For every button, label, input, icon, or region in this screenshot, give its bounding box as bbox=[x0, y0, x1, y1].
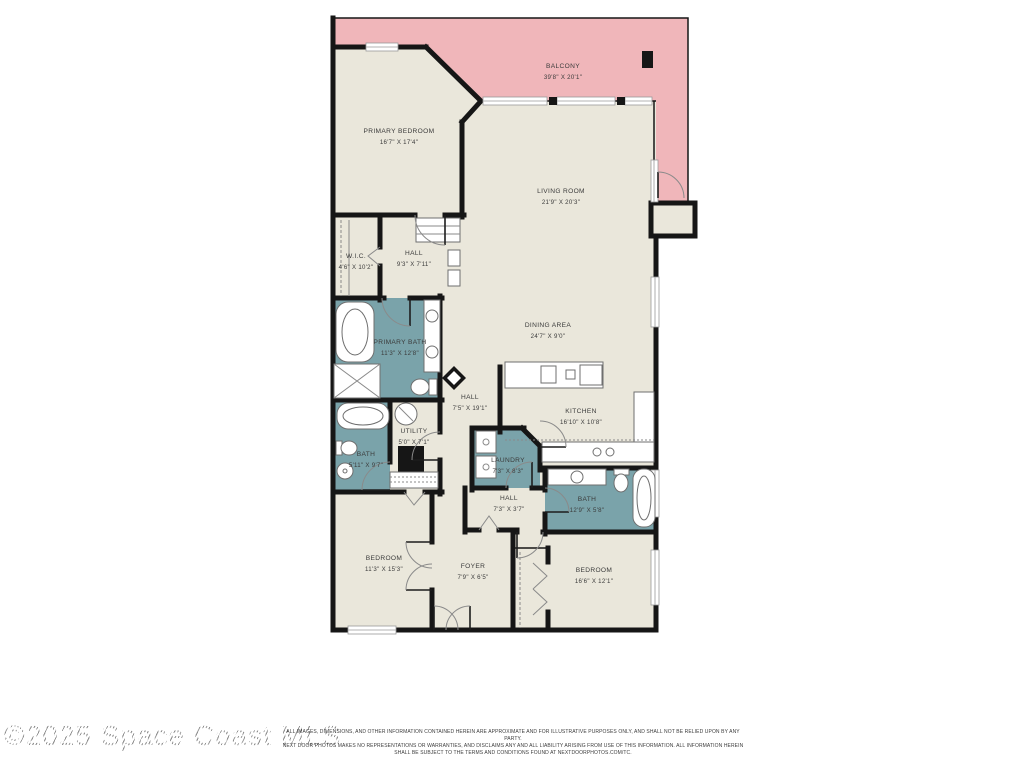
svg-text:BATH: BATH bbox=[578, 496, 597, 503]
sink-icon bbox=[426, 310, 438, 322]
svg-text:16'7" X 17'4": 16'7" X 17'4" bbox=[380, 139, 418, 146]
floor-plan-page: BALCONY39'8" X 20'1" PRIMARY BEDROOM16'7… bbox=[0, 0, 1024, 768]
toilet-icon bbox=[429, 379, 437, 395]
svg-text:7'3" X 3'7": 7'3" X 3'7" bbox=[494, 506, 525, 513]
svg-text:7'3" X 8'3": 7'3" X 8'3" bbox=[493, 468, 524, 475]
svg-text:BEDROOM: BEDROOM bbox=[366, 555, 403, 562]
closet-door-icon bbox=[448, 270, 460, 286]
entry-vestibule-area bbox=[652, 203, 694, 236]
svg-text:BATH: BATH bbox=[357, 451, 376, 458]
stove-icon bbox=[593, 448, 601, 456]
disclaimer-line: SHALL BE SUBJECT TO THE TERMS AND CONDIT… bbox=[282, 750, 744, 757]
svg-text:HALL: HALL bbox=[500, 495, 518, 502]
washer-icon bbox=[476, 431, 496, 453]
svg-text:LAUNDRY: LAUNDRY bbox=[491, 457, 525, 464]
disclaimer-line: NEXT DOOR PHOTOS MAKES NO REPRESENTATION… bbox=[282, 743, 744, 750]
svg-text:12'9" X 5'8": 12'9" X 5'8" bbox=[570, 507, 605, 514]
svg-text:11'3" X 12'8": 11'3" X 12'8" bbox=[381, 350, 419, 357]
kitchen-sink-icon bbox=[541, 366, 556, 383]
floor-plan: BALCONY39'8" X 20'1" PRIMARY BEDROOM16'7… bbox=[0, 0, 1024, 768]
svg-text:4'6" X 10'2": 4'6" X 10'2" bbox=[339, 264, 374, 271]
stove-icon bbox=[606, 448, 614, 456]
svg-text:FOYER: FOYER bbox=[461, 563, 485, 570]
svg-text:24'7" X 9'0": 24'7" X 9'0" bbox=[531, 333, 566, 340]
svg-text:DINING AREA: DINING AREA bbox=[525, 322, 572, 329]
closet-door-icon bbox=[448, 250, 460, 266]
svg-text:BEDROOM: BEDROOM bbox=[576, 567, 613, 574]
balcony-pillar bbox=[642, 51, 653, 68]
closet-shelf-icon bbox=[416, 218, 460, 242]
svg-text:16'6" X 12'1": 16'6" X 12'1" bbox=[575, 578, 613, 585]
svg-text:HALL: HALL bbox=[461, 394, 479, 401]
svg-text:9'3" X 7'11": 9'3" X 7'11" bbox=[397, 261, 431, 268]
sink-icon bbox=[571, 471, 583, 483]
svg-text:HALL: HALL bbox=[405, 250, 423, 257]
svg-text:KITCHEN: KITCHEN bbox=[565, 408, 596, 415]
svg-text:39'8" X 20'1": 39'8" X 20'1" bbox=[544, 74, 582, 81]
svg-text:W.I.C.: W.I.C. bbox=[346, 253, 366, 260]
svg-text:5'0" X 7'1": 5'0" X 7'1" bbox=[399, 439, 430, 446]
svg-text:11'3" X 15'3": 11'3" X 15'3" bbox=[365, 566, 403, 573]
svg-text:7'5" X 19'1": 7'5" X 19'1" bbox=[453, 405, 488, 412]
svg-text:BALCONY: BALCONY bbox=[546, 63, 580, 70]
disclaimer-text: ALL IMAGES, DIMENSIONS, AND OTHER INFORM… bbox=[282, 729, 744, 757]
svg-text:5'11" X 9'7": 5'11" X 9'7" bbox=[349, 462, 383, 469]
sink-icon bbox=[426, 346, 438, 358]
svg-text:7'9" X 6'5": 7'9" X 6'5" bbox=[458, 574, 489, 581]
svg-text:PRIMARY BEDROOM: PRIMARY BEDROOM bbox=[364, 128, 435, 135]
svg-text:UTILITY: UTILITY bbox=[401, 428, 428, 435]
svg-text:21'9" X 20'3": 21'9" X 20'3" bbox=[542, 199, 580, 206]
svg-text:16'10" X 10'8": 16'10" X 10'8" bbox=[560, 419, 602, 426]
kitchen-counter-icon bbox=[634, 392, 654, 442]
svg-text:LIVING ROOM: LIVING ROOM bbox=[537, 188, 585, 195]
svg-text:PRIMARY BATH: PRIMARY BATH bbox=[374, 339, 427, 346]
disclaimer-line: ALL IMAGES, DIMENSIONS, AND OTHER INFORM… bbox=[282, 729, 744, 743]
shelves-icon bbox=[390, 472, 438, 488]
